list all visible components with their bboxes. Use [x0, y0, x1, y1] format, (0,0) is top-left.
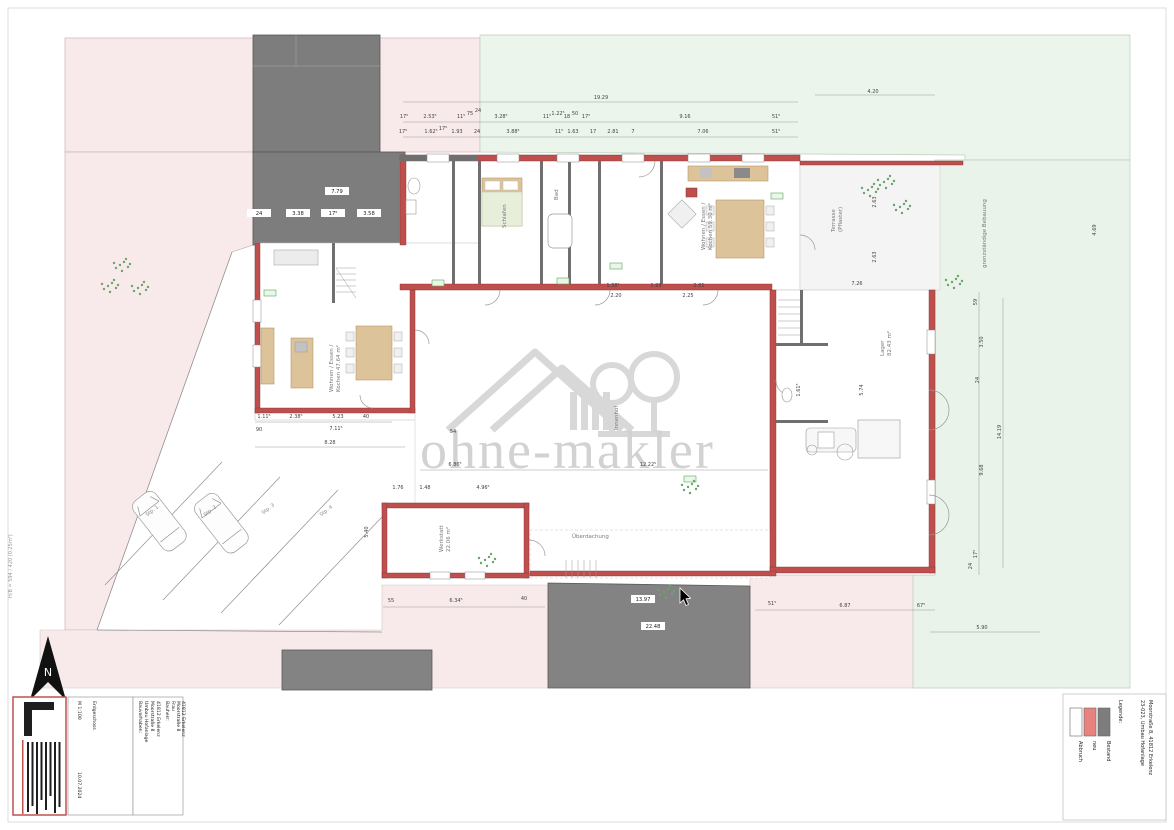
legend-label-bestand: Bestand: [1105, 741, 1111, 761]
room-label: Terrasse: [831, 209, 837, 233]
shrub-dot: [145, 289, 147, 291]
shrub-dot: [486, 565, 488, 567]
shrub-dot: [683, 489, 685, 491]
shrub-dot: [478, 557, 480, 559]
dimension-label: 1.99: [650, 283, 661, 289]
dimension-label: 1.76: [392, 485, 403, 491]
workshop: [382, 503, 529, 578]
dimension-label: 5.90: [976, 625, 987, 631]
toilet-east: [782, 388, 792, 402]
shrub-dot: [905, 200, 907, 202]
shrub-dot: [125, 258, 127, 260]
shrub-dot: [875, 191, 877, 193]
legend-swatch-abbruch: [1070, 708, 1082, 736]
dimension-label: 17: [590, 129, 596, 135]
shrub-dot: [139, 293, 141, 295]
plan-scale: M 1:100: [76, 701, 82, 720]
shrub-dot: [889, 175, 891, 177]
shrub-dot: [129, 263, 131, 265]
legend-project-ref-1: 23-023, Umbau Hofanlage: [1139, 700, 1145, 766]
shrub-dot: [861, 187, 863, 189]
kitchen-counter-west: [261, 328, 274, 384]
sofa: [274, 250, 318, 265]
shrub-dot: [113, 262, 115, 264]
garden-right: [913, 160, 1130, 688]
legend: Abbruch neu Bestand Legende: 23-023, Umb…: [1063, 694, 1166, 820]
dimension-label: 17⁵: [582, 114, 590, 120]
dimension-label: 24: [475, 108, 481, 114]
dimension-label: 4.96⁵: [476, 485, 489, 491]
shrub-dot: [873, 183, 875, 185]
shrub-dot: [671, 593, 673, 595]
shrub-dot: [947, 284, 949, 286]
dimension-label: 7: [631, 129, 634, 135]
room-label: Überdachung: [572, 533, 609, 540]
sink-bath: [406, 200, 416, 214]
shrub-dot: [867, 189, 869, 191]
shrub-dot: [957, 275, 959, 277]
room-label: Bad: [554, 189, 560, 200]
client-line-3: 41812 Erkelenz: [180, 701, 186, 737]
sheet-format-label: H/B = 594 / 420 (0.25m²): [8, 534, 14, 598]
shrub-dot: [687, 486, 689, 488]
dimension-label: 5.23: [332, 414, 343, 420]
shrub-dot: [121, 270, 123, 272]
shrub-dot: [893, 180, 895, 182]
shrub-dot: [494, 558, 496, 560]
room-label: 82.43 m²: [886, 331, 893, 356]
dimension-label: 17⁵: [973, 550, 979, 558]
dimension-label: 5.40: [364, 526, 370, 537]
street-band-right: [750, 575, 913, 688]
dimension-label: 54: [450, 429, 456, 435]
dimension-label: 24: [968, 563, 974, 569]
north-label: N: [44, 666, 52, 679]
legend-title: Legende:: [1117, 700, 1123, 723]
dimension-label: 50: [572, 111, 578, 117]
dimension-label: 6.87: [839, 603, 850, 609]
project-line-1: Umbau Hofanlage: [143, 701, 149, 743]
dimension-label: 7.26: [851, 281, 862, 287]
shrub-dot: [484, 559, 486, 561]
dimension-label: 24: [474, 129, 480, 135]
legend-project-ref-2: Moorstraße 8, 41812 Erkelenz: [1147, 700, 1153, 775]
watermark-text: ohne-makler: [420, 420, 715, 480]
shrub-dot: [951, 281, 953, 283]
dimension-label: 11⁵: [457, 114, 465, 120]
existing-building-tower: [253, 35, 380, 152]
legend-swatch-bestand: [1098, 708, 1110, 736]
room-label: Innenhof: [614, 405, 620, 430]
shrub-dot: [883, 181, 885, 183]
shrub-dot: [901, 212, 903, 214]
shrub-dot: [109, 291, 111, 293]
dimension-label: 24: [975, 377, 981, 383]
dimension-label: 3.50: [979, 336, 985, 347]
shrub-dot: [697, 485, 699, 487]
bathtub: [548, 214, 572, 248]
dimension-label: 6.34⁵: [449, 598, 462, 604]
dimension-label: 1.22⁵: [551, 111, 564, 117]
plan-sheet: ohne-makler: [0, 0, 1174, 830]
legend-swatch-neu: [1084, 708, 1096, 736]
dimension-label: 51⁵: [768, 601, 776, 607]
shrub-dot: [137, 287, 139, 289]
shrub-dot: [681, 484, 683, 486]
shrub-dot: [131, 285, 133, 287]
existing-dimension-label: 7.79: [331, 189, 343, 195]
shrub-dot: [669, 585, 671, 587]
sink-mid: [734, 168, 750, 178]
dimension-label: 2.81: [607, 129, 618, 135]
dimension-label: 2.63: [872, 251, 878, 262]
legend-label-abbruch: Abbruch: [1077, 741, 1083, 762]
room-label: Wohnen / Essen /: [329, 345, 335, 392]
dimension-label: 12.22⁵: [640, 462, 656, 468]
shrub-dot: [127, 266, 129, 268]
shrub-dot: [101, 283, 103, 285]
shrub-dot: [959, 283, 961, 285]
shrub-dot: [480, 562, 482, 564]
dimension-label: 2.20: [610, 293, 621, 299]
dimension-label: 2.38⁵: [289, 414, 302, 420]
shrub-dot: [877, 188, 879, 190]
fireplace: [686, 188, 697, 197]
room-label: Wohnen / Essen /: [701, 203, 707, 250]
shrub-dot: [893, 204, 895, 206]
dimension-label: 2.53⁵: [423, 114, 436, 120]
dimension-label: 90: [256, 427, 262, 433]
shrub-dot: [665, 597, 667, 599]
shrub-dot: [667, 588, 669, 590]
shrub-dot: [899, 206, 901, 208]
shrub-dot: [953, 287, 955, 289]
dimension-label: 67⁵: [917, 603, 925, 609]
stove-mid: [700, 168, 712, 178]
pillow: [485, 181, 500, 190]
shrub-dot: [115, 267, 117, 269]
dimension-label: 11⁵: [543, 114, 551, 120]
dimension-label: 1.48: [419, 485, 430, 491]
shrub-dot: [961, 280, 963, 282]
existing-dimension-label: 22.48: [646, 624, 661, 630]
shrub-dot: [945, 279, 947, 281]
dimension-label: 18: [564, 114, 570, 120]
plan-date: 10.07.2024: [76, 772, 82, 798]
dining-table-west: [356, 326, 392, 380]
toilet: [408, 178, 420, 194]
shrub-dot: [887, 178, 889, 180]
dimension-label: 6.86⁵: [448, 462, 461, 468]
shrub-dot: [123, 261, 125, 263]
shrub-dot: [869, 195, 871, 197]
room-label: 22.06 m²: [445, 527, 452, 552]
floorplan-drawing: ohne-makler: [0, 0, 1174, 830]
dimension-label: 51⁵: [772, 114, 780, 120]
terrace: [800, 163, 940, 290]
dimension-label: 40: [363, 414, 369, 420]
shrub-dot: [657, 589, 659, 591]
shrub-dot: [909, 205, 911, 207]
existing-dimension-label: 24: [256, 211, 263, 217]
shrub-dot: [117, 284, 119, 286]
room-label: Kochen 59.30 m²: [707, 203, 714, 250]
shrub-dot: [871, 186, 873, 188]
shrub-dot: [903, 203, 905, 205]
shrub-dot: [113, 279, 115, 281]
shrub-dot: [119, 264, 121, 266]
dimension-label: 3.88⁵: [506, 129, 519, 135]
shrub-dot: [673, 590, 675, 592]
dimension-label: 17⁵: [399, 129, 407, 135]
shrub-dot: [877, 179, 879, 181]
shrub-dot: [659, 594, 661, 596]
project-line-3: 41812 Erkelenz: [155, 701, 161, 737]
dimension-label: 14.19: [997, 425, 1003, 439]
dimension-label: 2.01: [693, 283, 704, 289]
client-header: Bauherr:: [164, 701, 170, 721]
room-label: (Pflaster): [838, 207, 844, 232]
dimension-label: 19.29: [594, 95, 608, 101]
title-block: M 1:100 10.07.2024 Erdgeschoss Bauvorhab…: [13, 697, 186, 815]
shrub-dot: [955, 278, 957, 280]
shrub-dot: [879, 184, 881, 186]
existing-building-south-small: [282, 650, 432, 690]
shrub-dot: [492, 561, 494, 563]
plan-name: Erdgeschoss: [91, 701, 97, 730]
shrub-dot: [488, 556, 490, 558]
dimension-label: 4.69: [1092, 224, 1098, 235]
dimension-label: 2.63: [872, 196, 878, 207]
shrub-dot: [891, 183, 893, 185]
project-line-2: Moorstraße 8: [149, 701, 155, 732]
shrub-dot: [147, 286, 149, 288]
dimension-label: 9.68: [979, 464, 985, 475]
room-label: grenzständige Bebauung: [982, 199, 988, 268]
dimension-label: 7.11⁵: [329, 426, 342, 432]
shrub-dot: [107, 285, 109, 287]
dimension-label: 1.63: [567, 129, 578, 135]
garden-top: [480, 35, 1130, 160]
dimension-label: 5.74: [859, 384, 865, 395]
project-header: Bauvorhaben:: [137, 701, 143, 734]
dimension-label: 3.28⁵: [494, 114, 507, 120]
shrub-dot: [111, 282, 113, 284]
existing-dimension-label: 17⁵: [329, 211, 338, 217]
room-label: Schlafen: [502, 204, 508, 228]
sink-west: [295, 342, 307, 352]
existing-dimension-label: 3.38: [292, 211, 304, 217]
dimension-label: 4.20: [867, 89, 878, 95]
dimension-label: 17⁵: [439, 126, 447, 132]
shrub-dot: [863, 192, 865, 194]
dimension-label: 1.38⁵: [606, 283, 619, 289]
dimension-label: 1.11⁵: [257, 414, 270, 420]
shrub-dot: [490, 553, 492, 555]
shrub-dot: [885, 187, 887, 189]
dimension-label: 55: [388, 598, 394, 604]
dimension-label: 11⁵: [555, 129, 563, 135]
dimension-label: 7.06: [697, 129, 708, 135]
room-label: Lager: [880, 340, 886, 356]
shrub-dot: [693, 480, 695, 482]
existing-dimension-label: 3.58: [363, 211, 375, 217]
dimension-label: 1.62⁵: [424, 129, 437, 135]
dimension-label: 40: [521, 596, 527, 602]
dimension-label: 51⁵: [772, 129, 780, 135]
existing-building-main: [253, 152, 405, 245]
dimension-label: 1.61⁵: [796, 383, 802, 396]
shrub-dot: [695, 488, 697, 490]
dimension-label: 1.93: [451, 129, 462, 135]
shrub-dot: [689, 492, 691, 494]
dimension-label: 17⁵: [400, 114, 408, 120]
existing-dimension-label: 13.97: [636, 597, 651, 603]
shrub-dot: [133, 290, 135, 292]
shrub-dot: [663, 591, 665, 593]
pillow: [503, 181, 518, 190]
dimension-label: 2.25: [682, 293, 693, 299]
dining-table-mid: [716, 200, 764, 258]
shrub-dot: [907, 208, 909, 210]
shrub-dot: [895, 209, 897, 211]
shrub-dot: [115, 287, 117, 289]
dimension-label: 9.16: [679, 114, 690, 120]
room-label: Werkstatt: [439, 525, 445, 552]
shrub-dot: [691, 483, 693, 485]
dimension-label: 59: [973, 299, 979, 305]
legend-label-neu: neu: [1091, 741, 1097, 750]
architect-stamp: [13, 697, 66, 815]
dimension-label: 75: [467, 111, 473, 117]
shrub-dot: [141, 284, 143, 286]
shrub-dot: [143, 281, 145, 283]
shrub-dot: [103, 288, 105, 290]
room-label: Kochen 47.64 m²: [335, 345, 342, 392]
dimension-label: 8.28: [324, 440, 335, 446]
